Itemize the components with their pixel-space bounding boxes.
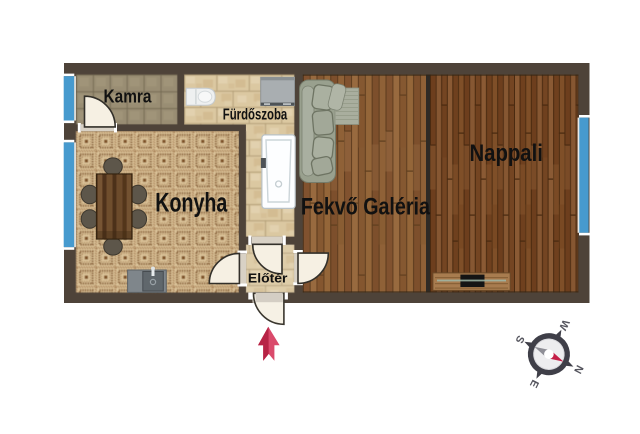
svg-text:Fekvő Galéria: Fekvő Galéria: [301, 194, 431, 221]
svg-text:Kamra: Kamra: [104, 85, 153, 106]
svg-text:Előtér: Előtér: [248, 271, 288, 286]
svg-text:N: N: [571, 363, 585, 376]
svg-text:S: S: [513, 333, 527, 345]
svg-text:Konyha: Konyha: [155, 188, 227, 218]
svg-text:E: E: [527, 378, 541, 390]
svg-text:W: W: [556, 318, 572, 333]
svg-text:Nappali: Nappali: [469, 140, 543, 167]
svg-text:Fürdőszoba: Fürdőszoba: [223, 107, 288, 124]
